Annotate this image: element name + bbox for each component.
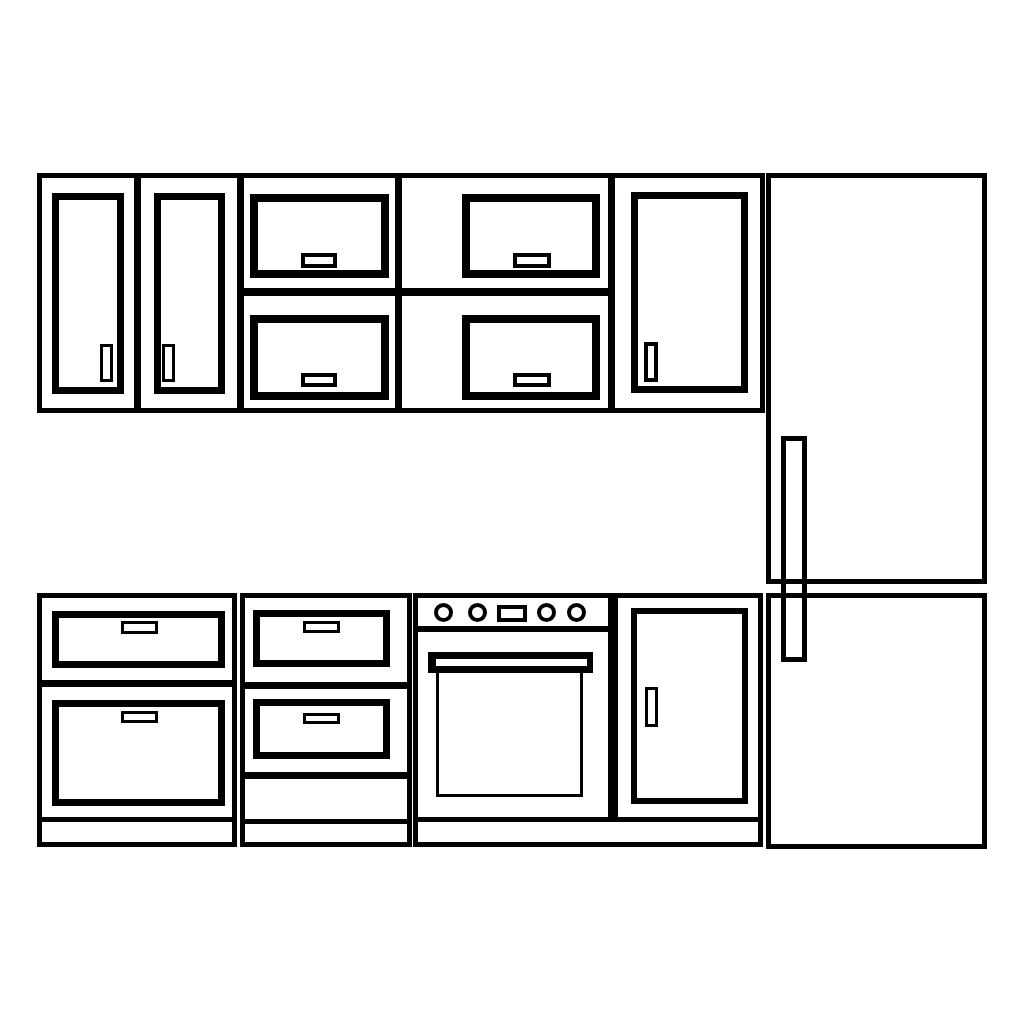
upper-cabinet-3-divider	[239, 288, 400, 296]
base-cabinet-1-bottom-drawer-handle	[121, 711, 158, 723]
stove-knob-1	[434, 603, 453, 622]
base-cabinet-2-top-drawer	[253, 610, 390, 667]
refrigerator-upper-door	[766, 173, 987, 584]
upper-cabinet-4-bottom-door-handle	[513, 373, 551, 387]
base-cabinet-3-door-handle	[645, 687, 658, 727]
oven-door	[436, 666, 583, 797]
base-cabinet-1-top-drawer-handle	[121, 621, 158, 634]
upper-cabinet-4-bottom-door	[462, 315, 600, 400]
base-cabinet-2-top-drawer-handle	[303, 621, 340, 633]
refrigerator-lower-door	[766, 593, 987, 849]
stove-and-cabinet-3-toe-kick	[413, 817, 763, 847]
stove-knob-3	[537, 603, 556, 622]
upper-cabinet-3-bottom-door-handle	[301, 373, 337, 387]
base-cabinet-1-toe-kick	[37, 817, 237, 847]
upper-cabinet-5-door-handle	[644, 342, 658, 382]
stove-knob-4	[567, 603, 586, 622]
stove-display	[497, 605, 527, 622]
upper-cabinet-1-door	[52, 193, 124, 394]
base-cabinet-1-divider	[37, 680, 237, 687]
stove-control-panel-line	[413, 626, 613, 632]
base-cabinet-2-toe-kick	[240, 819, 412, 847]
base-cabinet-1-top-drawer	[52, 611, 225, 668]
base-cabinet-2-lower-divider	[240, 772, 412, 779]
stove-knob-2	[468, 603, 487, 622]
upper-cabinet-4-divider	[397, 288, 613, 296]
base-cabinet-2-upper-divider	[240, 682, 412, 689]
oven-handle-slot	[436, 659, 587, 666]
upper-cabinet-3-top-door-handle	[301, 253, 337, 268]
upper-cabinet-4-top-door-handle	[513, 253, 551, 268]
upper-cabinet-2-door-handle	[162, 344, 175, 382]
upper-cabinet-1-door-handle	[100, 344, 113, 382]
kitchen-elevation-canvas	[0, 0, 1025, 1024]
base-cabinet-2-bottom-drawer-handle	[303, 713, 340, 724]
upper-cabinet-3-bottom-door	[250, 315, 389, 400]
base-cabinet-2-bottom-drawer	[253, 699, 390, 759]
